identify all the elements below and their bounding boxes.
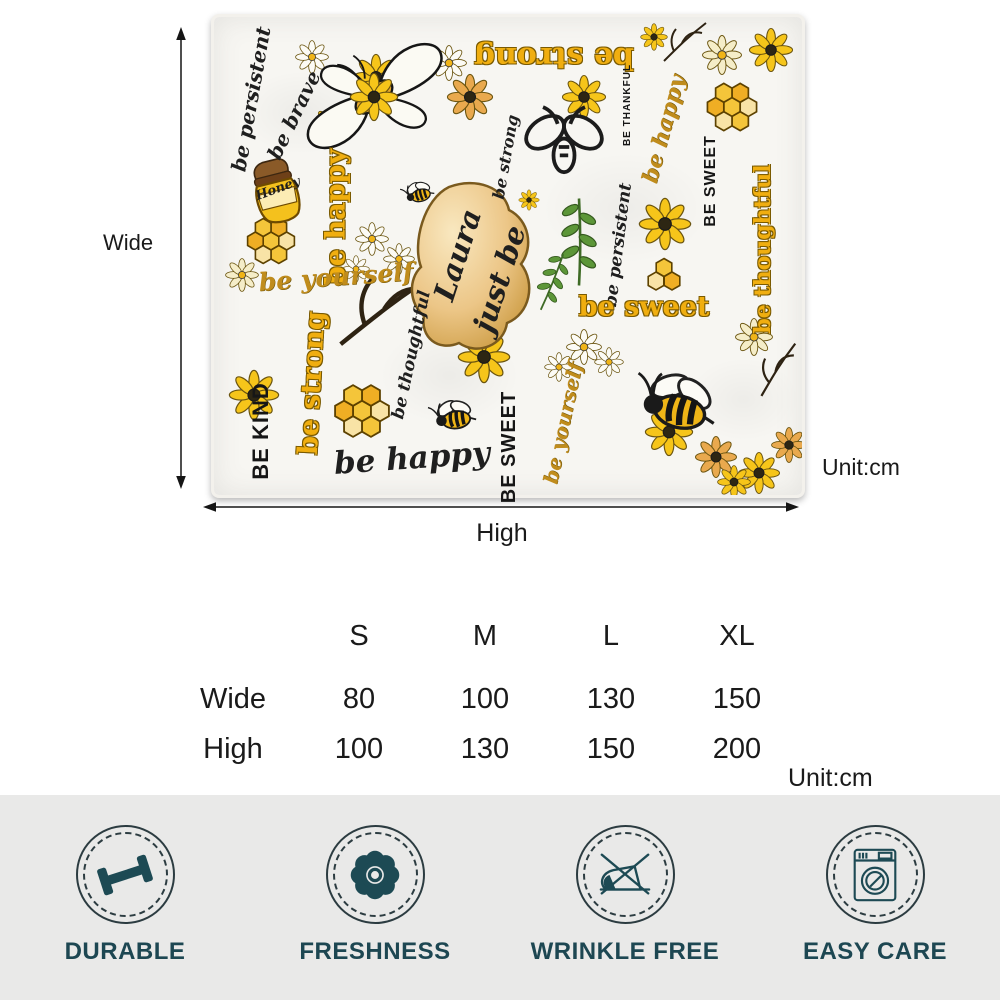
blanket-word: be yourself [258, 259, 414, 295]
dashed-ring [83, 832, 168, 917]
wide-label: Wide [96, 230, 160, 256]
dashed-ring [833, 832, 918, 917]
size-row-label: High [170, 731, 296, 767]
size-cell: 130 [548, 681, 674, 717]
blanket-word: be brave [264, 68, 324, 163]
size-table-row: High100130150200 [170, 731, 800, 767]
no-iron-icon [576, 825, 675, 924]
page: be persistentbe bravebe strongHoneybe ha… [0, 0, 1000, 1000]
width-dimension-arrow [173, 27, 189, 489]
size-cell: 150 [548, 731, 674, 767]
height-dimension-arrow [203, 499, 799, 515]
dashed-ring [583, 832, 668, 917]
unit-label-table: Unit:cm [788, 764, 873, 793]
dumbbell-icon [76, 825, 175, 924]
feature-label: DURABLE [65, 938, 186, 966]
blanket-words: be persistentbe bravebe strongHoneybe ha… [214, 17, 802, 495]
blanket-word: BE KIND [250, 382, 272, 479]
blanket-word: be thoughtful [752, 164, 774, 333]
blanket-word: BE THANKFUL [623, 64, 633, 146]
size-cell: S [296, 618, 422, 654]
size-cell: 100 [422, 681, 548, 717]
feature-wrinkle-free: WRINKLE FREE [500, 795, 750, 1000]
blanket-word: be thoughtful [390, 289, 434, 420]
size-cell: 80 [296, 681, 422, 717]
size-cell: XL [674, 618, 800, 654]
blanket-word: BE SWEET [703, 135, 719, 227]
blanket-word: be strong [295, 310, 329, 455]
blanket-word: be happy [333, 438, 491, 480]
feature-durable: DURABLE [0, 795, 250, 1000]
blanket-word: be strong [474, 42, 634, 72]
feature-easy-care: EASY CARE [750, 795, 1000, 1000]
size-cell: L [548, 618, 674, 654]
size-cell: 100 [296, 731, 422, 767]
blanket-word: BE SWEET [499, 391, 519, 503]
size-cell: 200 [674, 731, 800, 767]
blanket-word: Honey [254, 175, 302, 203]
high-label: High [460, 519, 544, 548]
size-table: SMLXLWide80100130150High100130150200 [170, 618, 800, 773]
washing-machine-icon [826, 825, 925, 924]
flower-icon [326, 825, 425, 924]
size-row-label [170, 618, 296, 654]
blanket-word: be sweet [579, 294, 710, 321]
blanket-product-image: be persistentbe bravebe strongHoneybe ha… [211, 14, 805, 498]
size-table-row: Wide80100130150 [170, 681, 800, 717]
feature-label: FRESHNESS [299, 938, 450, 966]
feature-freshness: FRESHNESS [250, 795, 500, 1000]
size-cell: 130 [422, 731, 548, 767]
size-row-label: Wide [170, 681, 296, 717]
size-table-header: SMLXL [170, 618, 800, 654]
feature-label: EASY CARE [803, 938, 947, 966]
feature-label: WRINKLE FREE [531, 938, 720, 966]
blanket-word: be happy [639, 73, 689, 186]
blanket-word: be strong [491, 114, 522, 201]
unit-label-top: Unit:cm [822, 454, 900, 481]
blanket-word: be persistent [603, 182, 635, 308]
blanket-word: be yourself [540, 360, 585, 485]
dashed-ring [333, 832, 418, 917]
size-cell: M [422, 618, 548, 654]
size-cell: 150 [674, 681, 800, 717]
features-section: DURABLE [0, 795, 1000, 1000]
